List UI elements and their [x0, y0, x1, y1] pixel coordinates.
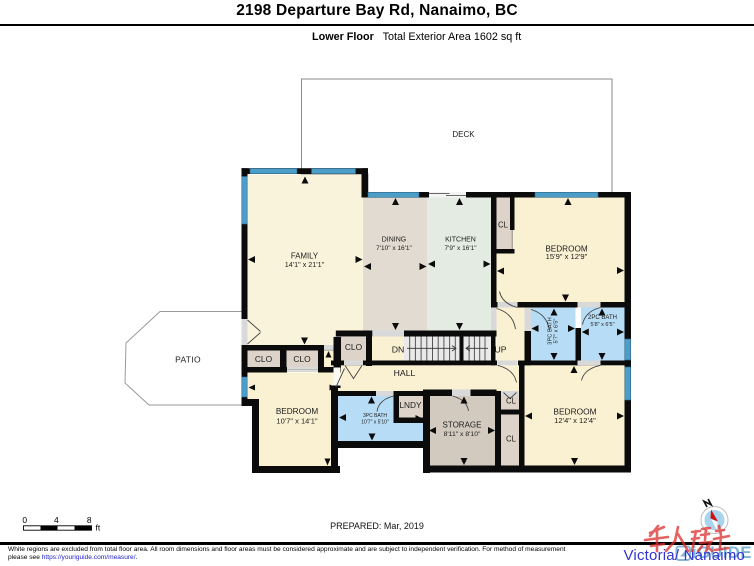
svg-text:PATIO: PATIO — [175, 355, 201, 365]
svg-text:UP: UP — [494, 344, 506, 354]
svg-text:CL: CL — [506, 435, 517, 444]
svg-text:12'4" x 12'4": 12'4" x 12'4" — [554, 416, 596, 425]
svg-text:DN: DN — [392, 344, 405, 354]
svg-text:CL: CL — [506, 397, 517, 406]
svg-text:3PC BATH: 3PC BATH — [363, 413, 387, 419]
svg-text:KITCHEN: KITCHEN — [445, 237, 476, 244]
svg-text:2PC BATH: 2PC BATH — [588, 315, 617, 321]
svg-text:STORAGE: STORAGE — [443, 421, 482, 430]
svg-text:CL: CL — [498, 221, 509, 230]
svg-text:HALL: HALL — [394, 368, 416, 378]
svg-text:10'7" x 14'1": 10'7" x 14'1" — [276, 417, 317, 426]
svg-text:8'11" x 8'10": 8'11" x 8'10" — [444, 431, 481, 438]
svg-text:5'8" x 6'5": 5'8" x 6'5" — [590, 322, 614, 328]
svg-text:5'7" x 6'5": 5'7" x 6'5" — [553, 319, 559, 344]
svg-text:CLO: CLO — [293, 354, 311, 364]
svg-text:14'1" x 21'1": 14'1" x 21'1" — [285, 260, 325, 269]
svg-text:CLO: CLO — [255, 354, 273, 364]
svg-text:DINING: DINING — [382, 237, 407, 244]
svg-text:DECK: DECK — [452, 130, 475, 139]
svg-text:7'10" x 16'1": 7'10" x 16'1" — [376, 245, 412, 252]
svg-text:LNDY: LNDY — [399, 400, 422, 410]
svg-text:BEDROOM: BEDROOM — [553, 407, 596, 417]
svg-text:7'9" x 16'1": 7'9" x 16'1" — [444, 245, 477, 252]
svg-text:10'7" x 5'10": 10'7" x 5'10" — [361, 420, 389, 426]
svg-text:CLO: CLO — [345, 342, 363, 352]
svg-text:15'9" x 12'9": 15'9" x 12'9" — [546, 252, 588, 261]
svg-text:BEDROOM: BEDROOM — [276, 407, 318, 416]
